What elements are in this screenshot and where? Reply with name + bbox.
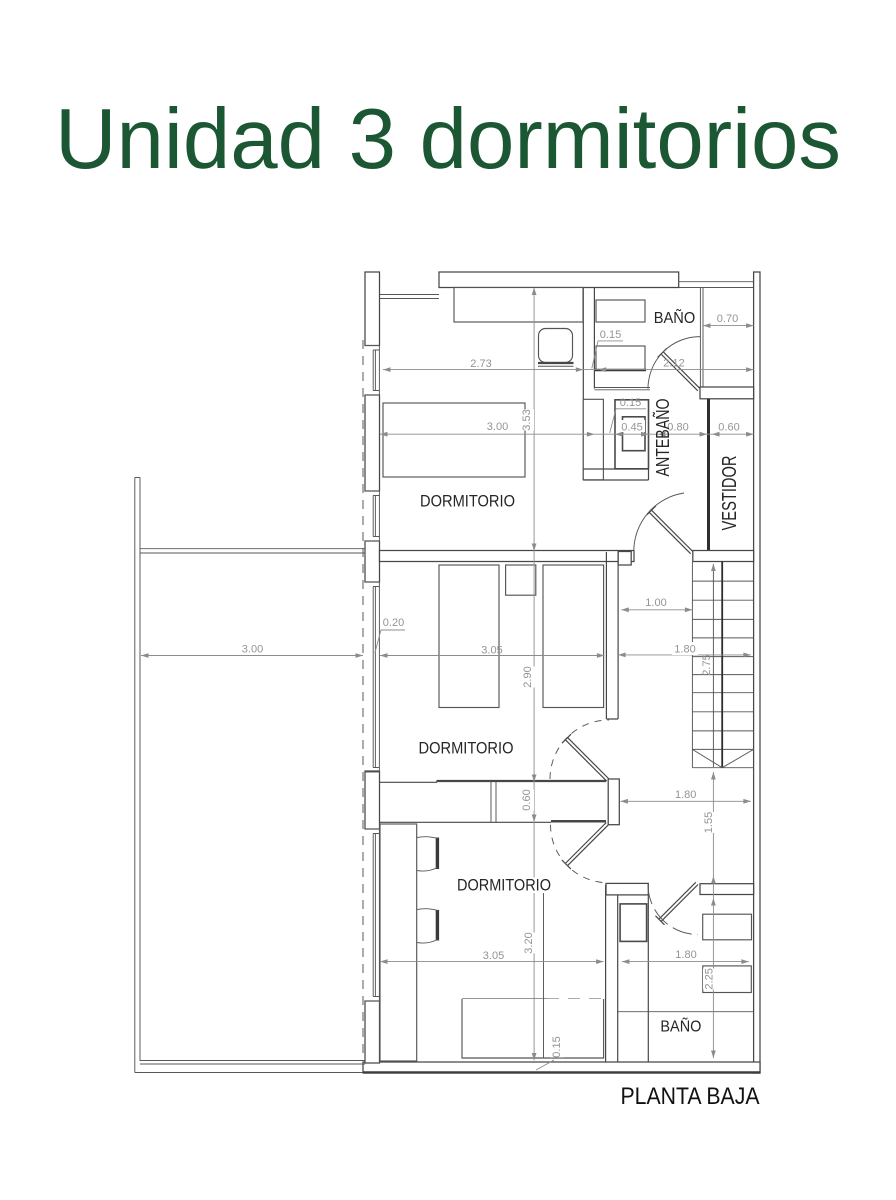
svg-text:3.53: 3.53 [521,409,533,430]
svg-text:2.12: 2.12 [663,358,684,370]
svg-text:ANTEBAÑO: ANTEBAÑO [652,399,673,477]
svg-text:3.00: 3.00 [242,644,263,656]
svg-text:0.20: 0.20 [383,617,404,629]
svg-text:PLANTA BAJA: PLANTA BAJA [621,1083,760,1110]
svg-text:1.00: 1.00 [645,597,666,609]
svg-text:2.25: 2.25 [704,968,716,989]
svg-text:0.60: 0.60 [718,422,739,434]
svg-text:DORMITORIO: DORMITORIO [420,493,515,511]
svg-text:2.75: 2.75 [701,654,713,675]
svg-text:1.80: 1.80 [675,789,696,801]
svg-text:1.80: 1.80 [675,949,696,961]
svg-text:Unidad 3 dormitorios: Unidad 3 dormitorios [55,92,841,187]
svg-text:3.20: 3.20 [523,932,535,953]
svg-text:0.70: 0.70 [717,313,738,325]
svg-text:VESTIDOR: VESTIDOR [719,456,741,531]
svg-text:DORMITORIO: DORMITORIO [419,740,514,758]
svg-text:DORMITORIO: DORMITORIO [457,877,551,895]
svg-text:0.15: 0.15 [600,329,621,341]
svg-text:2.73: 2.73 [470,358,491,370]
svg-text:0.15: 0.15 [620,397,641,409]
svg-text:0.15: 0.15 [551,1036,563,1057]
svg-text:0.45: 0.45 [621,422,642,434]
svg-text:1.80: 1.80 [674,644,695,656]
svg-text:BAÑO: BAÑO [660,1016,701,1036]
svg-text:3.05: 3.05 [481,645,502,657]
svg-text:1.55: 1.55 [703,812,715,833]
svg-text:3.05: 3.05 [483,950,504,962]
svg-text:3.00: 3.00 [487,421,508,433]
svg-text:0.60: 0.60 [521,789,533,810]
svg-text:BAÑO: BAÑO [654,307,696,327]
svg-text:2.90: 2.90 [522,666,534,687]
